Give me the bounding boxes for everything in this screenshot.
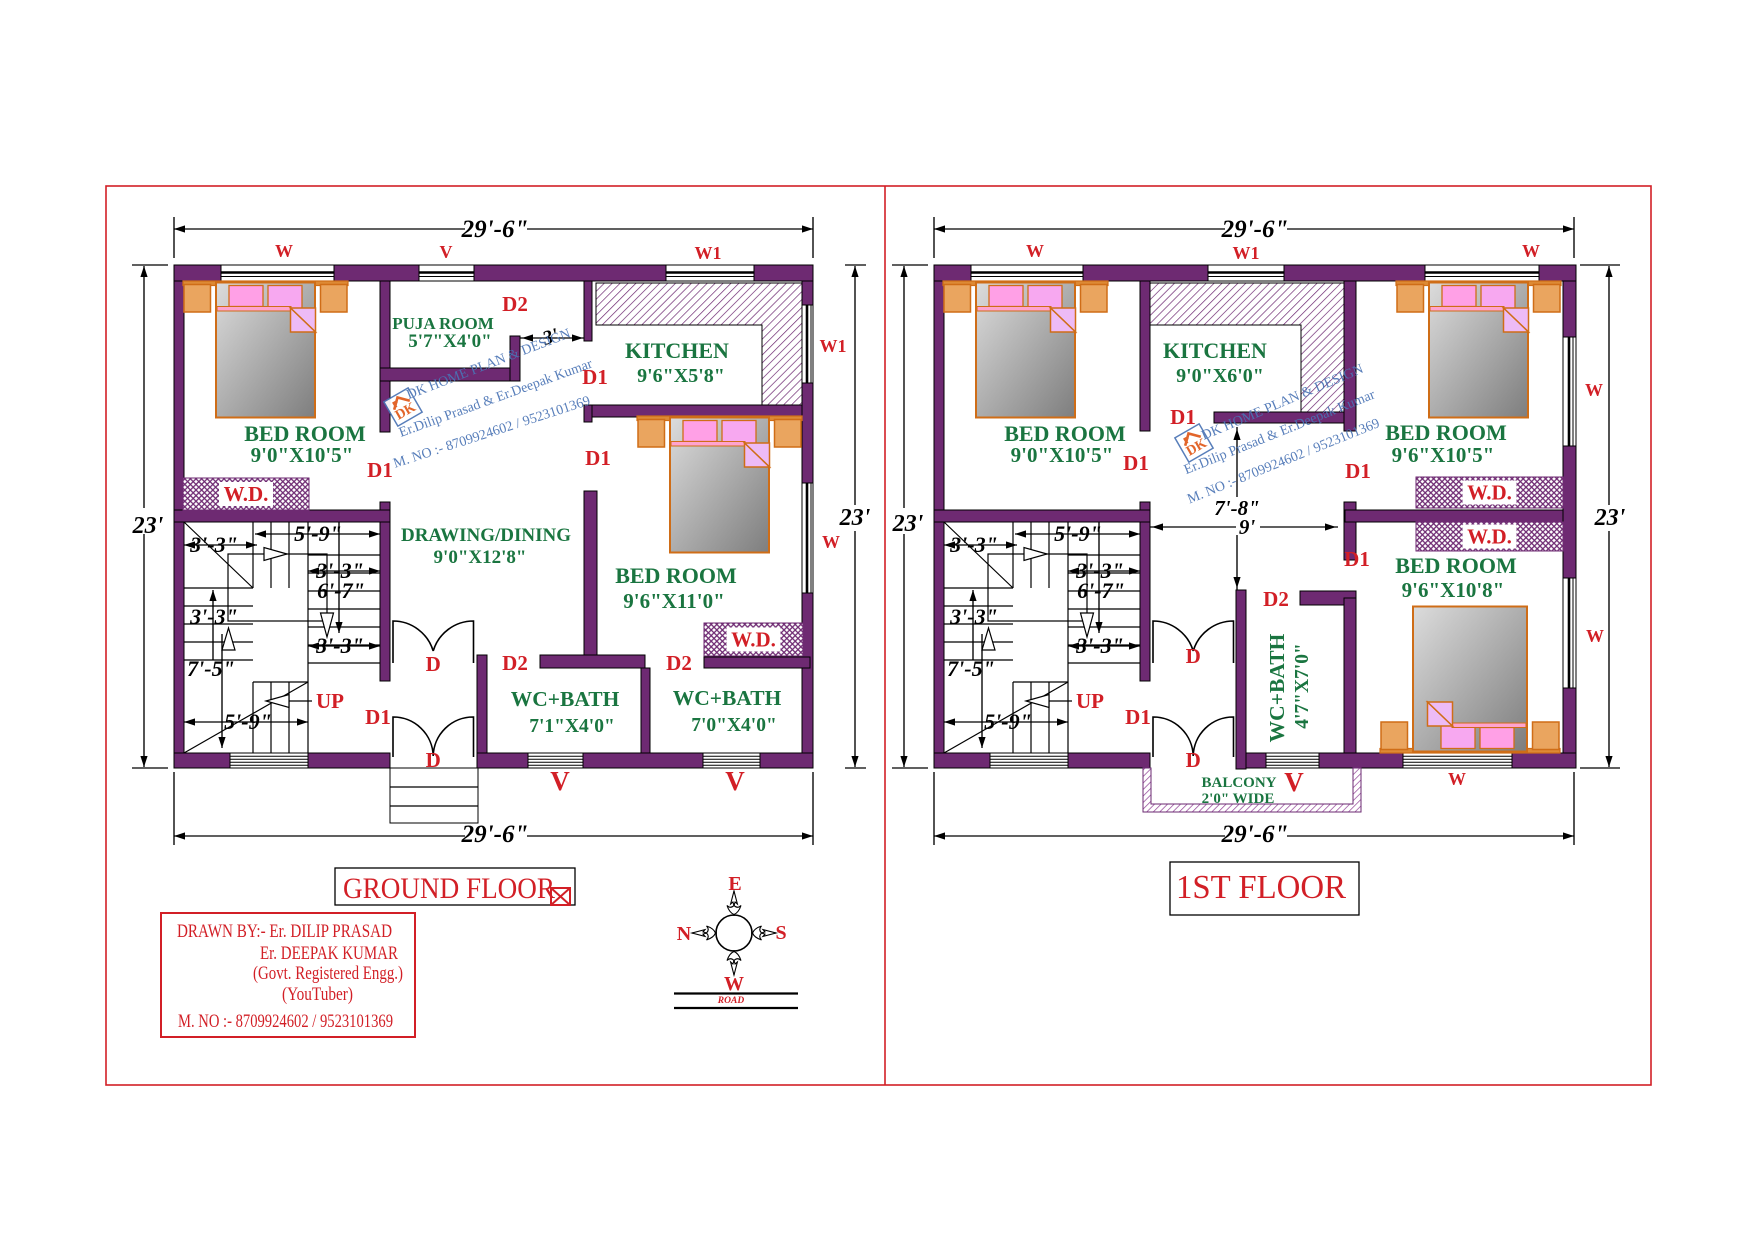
svg-text:D1: D1	[585, 446, 611, 470]
svg-text:WC+BATH: WC+BATH	[1265, 633, 1289, 742]
svg-text:D1: D1	[1123, 451, 1149, 475]
svg-text:M. NO :- 8709924602 / 95231013: M. NO :- 8709924602 / 9523101369	[178, 1011, 393, 1032]
svg-text:W: W	[275, 241, 293, 261]
svg-text:3'-3": 3'-3"	[315, 633, 364, 658]
svg-text:5'-9": 5'-9"	[294, 521, 342, 546]
svg-text:D1: D1	[365, 705, 391, 729]
svg-text:W: W	[822, 532, 840, 552]
svg-text:5'7"X4'0": 5'7"X4'0"	[408, 331, 491, 352]
svg-text:7'-5": 7'-5"	[947, 656, 995, 681]
svg-text:W: W	[724, 973, 744, 995]
svg-text:Er. DEEPAK KUMAR: Er. DEEPAK KUMAR	[260, 943, 398, 964]
svg-text:29'-6": 29'-6"	[461, 216, 529, 243]
svg-text:D1: D1	[1170, 405, 1196, 429]
svg-text:V: V	[440, 242, 453, 262]
svg-text:D2: D2	[1263, 587, 1289, 611]
svg-text:7'-5": 7'-5"	[187, 656, 235, 681]
svg-text:W: W	[1026, 241, 1044, 261]
svg-text:(YouTuber): (YouTuber)	[282, 984, 353, 1005]
svg-text:WC+BATH: WC+BATH	[673, 686, 782, 710]
svg-text:KITCHEN: KITCHEN	[625, 338, 729, 363]
svg-text:23': 23'	[839, 505, 871, 531]
svg-text:W.D.: W.D.	[1467, 481, 1512, 505]
svg-text:9'0"X10'5": 9'0"X10'5"	[1011, 443, 1114, 467]
svg-text:3'-3": 3'-3"	[949, 604, 998, 629]
svg-text:D: D	[1186, 748, 1201, 772]
svg-text:3'-3": 3'-3"	[189, 532, 238, 557]
svg-text:2'0" WIDE: 2'0" WIDE	[1202, 791, 1275, 807]
svg-text:W: W	[1448, 769, 1466, 789]
svg-text:BALCONY: BALCONY	[1201, 775, 1276, 791]
svg-text:W.D.: W.D.	[224, 482, 269, 506]
svg-text:BED ROOM: BED ROOM	[1385, 420, 1507, 445]
svg-text:3'-3": 3'-3"	[949, 532, 998, 557]
svg-text:5'-9": 5'-9"	[224, 709, 272, 734]
svg-text:1ST FLOOR: 1ST FLOOR	[1176, 869, 1346, 906]
svg-text:29'-6": 29'-6"	[461, 821, 529, 848]
svg-text:UP: UP	[1076, 689, 1104, 713]
svg-text:W: W	[1586, 626, 1604, 646]
svg-text:D1: D1	[1345, 459, 1371, 483]
svg-text:D1: D1	[1344, 547, 1370, 571]
svg-text:W1: W1	[1233, 243, 1260, 263]
svg-text:BED ROOM: BED ROOM	[615, 563, 737, 588]
svg-text:9'6"X10'5": 9'6"X10'5"	[1392, 443, 1495, 467]
svg-text:7'0"X4'0": 7'0"X4'0"	[691, 715, 777, 736]
svg-text:9': 9'	[1239, 515, 1256, 539]
svg-text:3'-3": 3'-3"	[1075, 633, 1124, 658]
svg-text:N: N	[677, 923, 692, 945]
svg-text:D2: D2	[666, 651, 692, 675]
svg-text:ROAD: ROAD	[717, 996, 745, 1006]
svg-text:9'6"X10'8": 9'6"X10'8"	[1402, 578, 1505, 602]
svg-text:5'-9": 5'-9"	[984, 709, 1032, 734]
svg-text:7'1"X4'0": 7'1"X4'0"	[529, 716, 615, 737]
svg-text:BED ROOM: BED ROOM	[1395, 553, 1517, 578]
svg-text:W.D.: W.D.	[731, 628, 776, 652]
svg-text:W.D.: W.D.	[1467, 525, 1512, 549]
svg-text:23': 23'	[132, 513, 164, 539]
svg-text:D2: D2	[502, 292, 528, 316]
svg-text:9'6"X11'0": 9'6"X11'0"	[623, 589, 725, 613]
svg-text:9'0"X6'0": 9'0"X6'0"	[1176, 365, 1264, 387]
svg-text:3'-3": 3'-3"	[189, 604, 238, 629]
svg-text:(Govt. Registered Engg.): (Govt. Registered Engg.)	[253, 963, 403, 984]
svg-text:9'6"X5'8": 9'6"X5'8"	[637, 365, 725, 387]
svg-text:23': 23'	[1594, 505, 1626, 531]
svg-text:DRAWN BY:- Er. DILIP PRASAD: DRAWN BY:- Er. DILIP PRASAD	[177, 921, 392, 942]
svg-text:DRAWING/DINING: DRAWING/DINING	[401, 525, 571, 546]
svg-text:D: D	[1186, 644, 1201, 668]
svg-text:29'-6": 29'-6"	[1221, 216, 1289, 243]
svg-text:23': 23'	[892, 511, 924, 537]
svg-text:D: D	[426, 652, 441, 676]
svg-text:W1: W1	[695, 243, 722, 263]
svg-text:D1: D1	[367, 458, 393, 482]
svg-text:9'0"X12'8": 9'0"X12'8"	[434, 547, 527, 568]
svg-text:WC+BATH: WC+BATH	[511, 687, 620, 711]
svg-text:V: V	[725, 766, 745, 796]
svg-text:W: W	[1585, 380, 1603, 400]
svg-text:D1: D1	[1125, 705, 1151, 729]
svg-text:GROUND FLOOR: GROUND FLOOR	[343, 872, 555, 905]
svg-text:6'-7": 6'-7"	[1077, 578, 1125, 603]
svg-text:6'-7": 6'-7"	[317, 578, 365, 603]
svg-text:KITCHEN: KITCHEN	[1163, 338, 1267, 363]
svg-text:D2: D2	[502, 651, 528, 675]
svg-text:V: V	[1284, 767, 1304, 797]
svg-text:W1: W1	[820, 336, 847, 356]
svg-text:4'7"X7'0": 4'7"X7'0"	[1292, 643, 1313, 729]
svg-text:9'0"X10'5": 9'0"X10'5"	[251, 443, 354, 467]
svg-text:29'-6": 29'-6"	[1221, 821, 1289, 848]
svg-text:W: W	[1522, 241, 1540, 261]
svg-text:5'-9": 5'-9"	[1054, 521, 1102, 546]
svg-text:V: V	[550, 766, 570, 796]
svg-text:E: E	[728, 873, 741, 895]
svg-text:UP: UP	[316, 689, 344, 713]
svg-text:S: S	[775, 922, 786, 944]
